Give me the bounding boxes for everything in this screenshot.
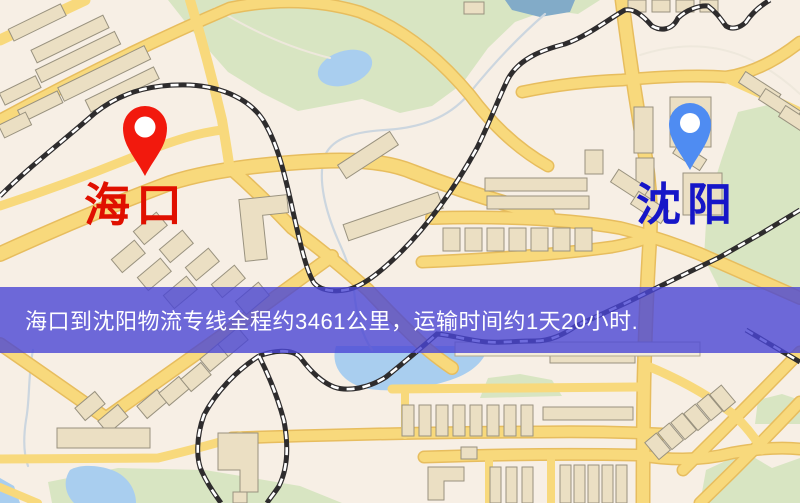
map-canvas[interactable]: 海口 沈阳 海口到沈阳物流专线全程约3461公里，运输时间约1天20小时.	[0, 0, 800, 503]
shenyang-label: 沈阳	[636, 179, 738, 230]
info-banner: 海口到沈阳物流专线全程约3461公里，运输时间约1天20小时.	[0, 287, 800, 353]
haikou-label: 海口	[84, 179, 188, 231]
map-container: 海口 沈阳 海口到沈阳物流专线全程约3461公里，运输时间约1天20小时.	[0, 0, 800, 503]
info-banner-text: 海口到沈阳物流专线全程约3461公里，运输时间约1天20小时.	[25, 309, 638, 334]
